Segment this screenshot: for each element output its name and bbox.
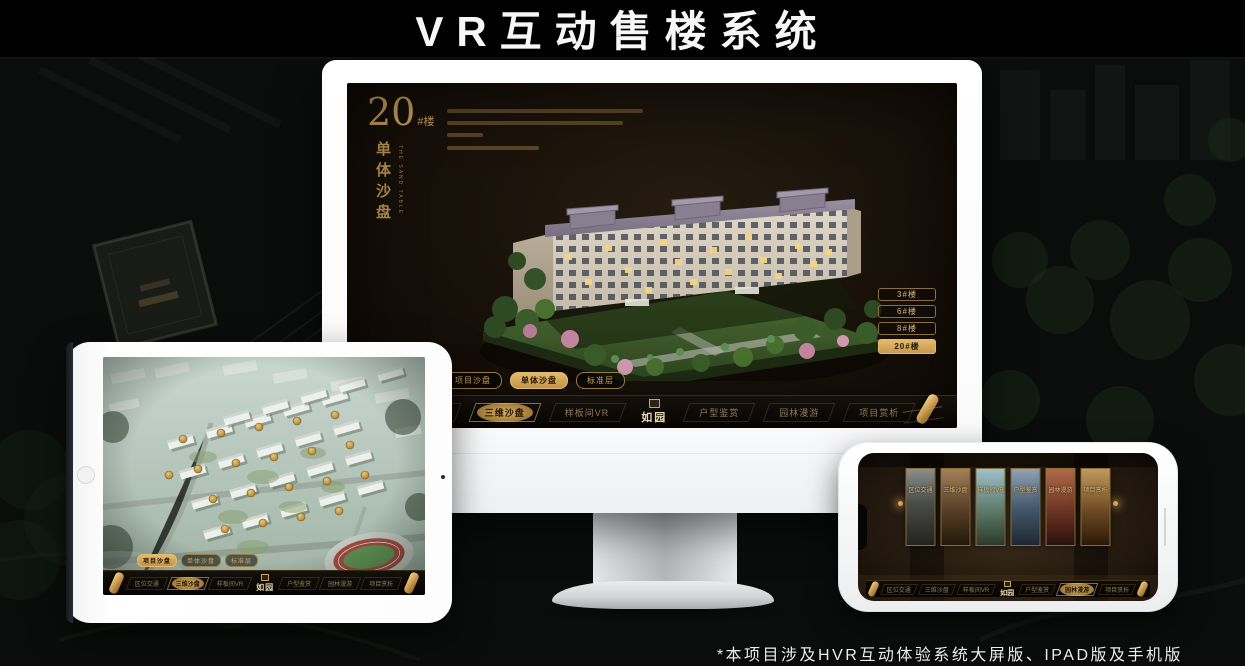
wall-lamp bbox=[1113, 501, 1118, 506]
subtab-project-sandtable-active[interactable]: 项目沙盘 bbox=[137, 554, 177, 567]
nav-item-3d-sandtable-active[interactable]: 三维沙盘 bbox=[172, 577, 204, 590]
phone-side-detail bbox=[1164, 508, 1166, 546]
menu-cards: 区位交通 三维沙盘 样板间VR 户型鉴赏 园林漫游 项目赏析 bbox=[906, 468, 1111, 546]
card-label: 户型鉴赏 bbox=[1012, 485, 1040, 494]
phone-device: 区位交通 三维沙盘 样板间VR 户型鉴赏 园林漫游 项目赏析 区位交通 三维沙盘… bbox=[838, 442, 1178, 612]
card-label: 区位交通 bbox=[907, 485, 935, 494]
nav-item-floorplans[interactable]: 户型鉴赏 bbox=[1022, 584, 1052, 595]
scroll-icon[interactable] bbox=[903, 397, 947, 425]
nav-item-showroom-vr[interactable]: 样板间VR bbox=[557, 403, 618, 422]
card-label: 园林漫游 bbox=[1047, 485, 1075, 494]
floor-button-8[interactable]: 8#楼 bbox=[878, 322, 936, 335]
title-band: VR互动售楼系统 bbox=[0, 0, 1245, 57]
ruyuan-logo[interactable]: 如园 bbox=[256, 574, 274, 593]
seal-icon bbox=[261, 574, 269, 581]
nav-item-project-gallery[interactable]: 项目赏析 bbox=[365, 577, 397, 590]
logo-text: 如园 bbox=[641, 409, 667, 425]
section-title-english: THE SAND TABLE bbox=[397, 145, 403, 245]
card-label: 样板间VR bbox=[977, 485, 1005, 494]
menu-card-showroom[interactable]: 样板间VR bbox=[976, 468, 1006, 546]
monitor-subtabs: 项目沙盘 单体沙盘 标准层 bbox=[444, 372, 625, 389]
intro-text-line bbox=[447, 121, 623, 125]
scroll-handle-right[interactable] bbox=[403, 571, 420, 595]
nav-item-project-gallery[interactable]: 项目赏析 bbox=[1102, 584, 1132, 595]
building-headline: 20#楼 bbox=[367, 93, 434, 131]
camera-dot bbox=[441, 475, 445, 479]
nav-item-garden-roam[interactable]: 园林漫游 bbox=[771, 403, 827, 422]
nav-item-3d-sandtable[interactable]: 三维沙盘 bbox=[922, 584, 952, 595]
floor-button-20-active[interactable]: 20#楼 bbox=[878, 339, 936, 354]
logo-text: 如园 bbox=[256, 582, 274, 593]
nav-item-garden-roam[interactable]: 园林漫游 bbox=[324, 577, 356, 590]
tablet-nav-bar: 区位交通 三维沙盘 样板间VR 如园 户型鉴赏 园林漫游 项目赏析 bbox=[103, 570, 425, 595]
menu-card-floorplans[interactable]: 户型鉴赏 bbox=[1011, 468, 1041, 546]
building-model-3d[interactable] bbox=[475, 159, 899, 381]
plaque-decor bbox=[94, 221, 217, 348]
subtab-single-sandtable-active[interactable]: 单体沙盘 bbox=[510, 372, 568, 389]
subtab-standard-floor[interactable]: 标准层 bbox=[576, 372, 625, 389]
intro-text-line bbox=[447, 146, 539, 150]
nav-item-floorplans[interactable]: 户型鉴赏 bbox=[283, 577, 315, 590]
menu-card-garden[interactable]: 园林漫游 bbox=[1046, 468, 1076, 546]
floor-button-3[interactable]: 3#楼 bbox=[878, 288, 936, 301]
monitor-stand-neck bbox=[593, 512, 737, 586]
phone-nav-bar: 区位交通 三维沙盘 样板间VR 如园 户型鉴赏 园林漫游 项目赏析 bbox=[866, 580, 1150, 597]
faint-buildings bbox=[1000, 60, 1230, 160]
intro-text-line bbox=[447, 133, 483, 137]
phone-notch bbox=[858, 504, 867, 550]
subtab-project-sandtable[interactable]: 项目沙盘 bbox=[444, 372, 502, 389]
floor-selector: 3#楼 6#楼 8#楼 20#楼 bbox=[878, 288, 936, 358]
scroll-handle-left[interactable] bbox=[867, 580, 880, 597]
card-label: 项目赏析 bbox=[1082, 485, 1110, 494]
seal-icon bbox=[649, 399, 660, 408]
scroll-handle-right[interactable] bbox=[1136, 580, 1149, 597]
nav-item-location[interactable]: 区位交通 bbox=[884, 584, 914, 595]
tablet-device: 项目沙盘 单体沙盘 标准层 区位交通 三维沙盘 样板间VR 如园 户型鉴赏 园林… bbox=[66, 342, 452, 623]
phone-screen: 区位交通 三维沙盘 样板间VR 户型鉴赏 园林漫游 项目赏析 区位交通 三维沙盘… bbox=[858, 453, 1158, 601]
subtab-standard-floor[interactable]: 标准层 bbox=[225, 554, 258, 567]
building-number-suffix: #楼 bbox=[417, 116, 434, 128]
home-button[interactable] bbox=[77, 466, 95, 484]
nav-item-showroom-vr[interactable]: 样板间VR bbox=[960, 584, 992, 595]
page-title: VR互动售楼系统 bbox=[415, 0, 829, 59]
logo-text: 如园 bbox=[1000, 588, 1014, 598]
page: VR互动售楼系统 20#楼 单体沙盘 THE SAND TABLE bbox=[0, 0, 1245, 666]
footnote: *本项目涉及HVR互动体验系统大屏版、IPAD版及手机版 bbox=[717, 641, 1183, 665]
nav-item-3d-sandtable-active[interactable]: 三维沙盘 bbox=[477, 403, 533, 422]
interior-ceiling bbox=[858, 453, 1158, 467]
monitor-stand-base bbox=[552, 581, 774, 609]
nav-item-project-gallery[interactable]: 项目赏析 bbox=[851, 403, 907, 422]
menu-card-gallery[interactable]: 项目赏析 bbox=[1081, 468, 1111, 546]
ruyuan-logo[interactable]: 如园 bbox=[641, 399, 667, 425]
section-title-vertical: 单体沙盘 bbox=[372, 141, 393, 251]
tablet-screen: 项目沙盘 单体沙盘 标准层 区位交通 三维沙盘 样板间VR 如园 户型鉴赏 园林… bbox=[103, 357, 425, 595]
faint-foliage bbox=[980, 118, 1245, 454]
menu-card-location[interactable]: 区位交通 bbox=[906, 468, 936, 546]
floor-button-6[interactable]: 6#楼 bbox=[878, 305, 936, 318]
tablet-subtabs: 项目沙盘 单体沙盘 标准层 bbox=[137, 554, 258, 567]
scroll-handle-left[interactable] bbox=[108, 571, 125, 595]
wall-lamp bbox=[898, 501, 903, 506]
tablet-edge bbox=[66, 342, 73, 623]
building-number: 20 bbox=[367, 90, 415, 134]
card-label: 三维沙盘 bbox=[942, 485, 970, 494]
nav-item-location[interactable]: 区位交通 bbox=[131, 577, 163, 590]
nav-item-showroom-vr[interactable]: 样板间VR bbox=[213, 577, 247, 590]
nav-item-floorplans[interactable]: 户型鉴赏 bbox=[691, 403, 747, 422]
menu-card-sandtable[interactable]: 三维沙盘 bbox=[941, 468, 971, 546]
subtab-single-sandtable[interactable]: 单体沙盘 bbox=[181, 554, 221, 567]
seal-icon bbox=[1004, 581, 1011, 587]
intro-text-line bbox=[447, 109, 643, 113]
nav-item-garden-roam-active[interactable]: 园林漫游 bbox=[1060, 583, 1094, 596]
ruyuan-logo[interactable]: 如园 bbox=[1000, 581, 1014, 598]
